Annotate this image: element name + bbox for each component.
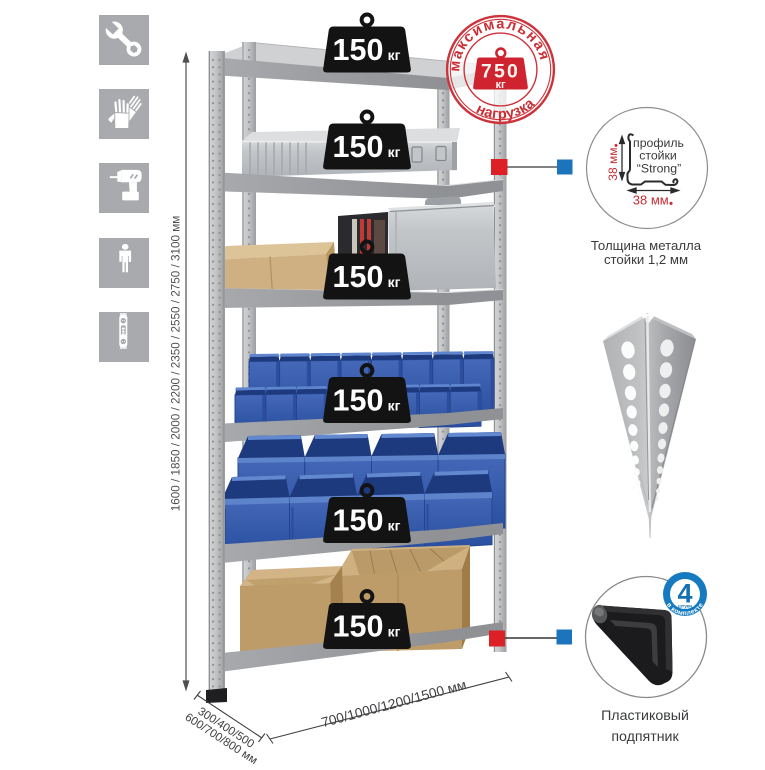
svg-text:кг: кг [495, 79, 506, 91]
svg-text:кг: кг [388, 144, 401, 160]
svg-text:150: 150 [333, 610, 384, 644]
svg-text:кг: кг [388, 274, 401, 290]
svg-text:150: 150 [333, 504, 384, 538]
svg-text:Пластиковый: Пластиковый [601, 708, 689, 724]
svg-text:150: 150 [333, 33, 384, 67]
svg-text:кг: кг [388, 624, 401, 640]
svg-text:стойки: стойки [639, 149, 677, 163]
svg-text:подпятник: подпятник [611, 729, 679, 745]
svg-text:кг: кг [388, 47, 401, 63]
svg-text:Толщина металла: Толщина металла [591, 238, 702, 253]
svg-text:38 мм●: 38 мм● [633, 193, 673, 208]
svg-text:150: 150 [333, 260, 384, 294]
svg-text:кг: кг [388, 518, 401, 534]
svg-text:штуки: штуки [678, 603, 692, 608]
svg-text:38 мм●: 38 мм● [606, 143, 620, 180]
svg-text:стойки 1,2 мм: стойки 1,2 мм [604, 252, 688, 267]
svg-text:кг: кг [388, 398, 401, 414]
svg-text:150: 150 [333, 384, 384, 418]
svg-text:1600 / 1850 / 2000 / 2200 / 23: 1600 / 1850 / 2000 / 2200 / 2350 / 2550 … [170, 216, 183, 512]
svg-text:“Strong”: “Strong” [637, 162, 681, 176]
svg-text:150: 150 [333, 130, 384, 164]
